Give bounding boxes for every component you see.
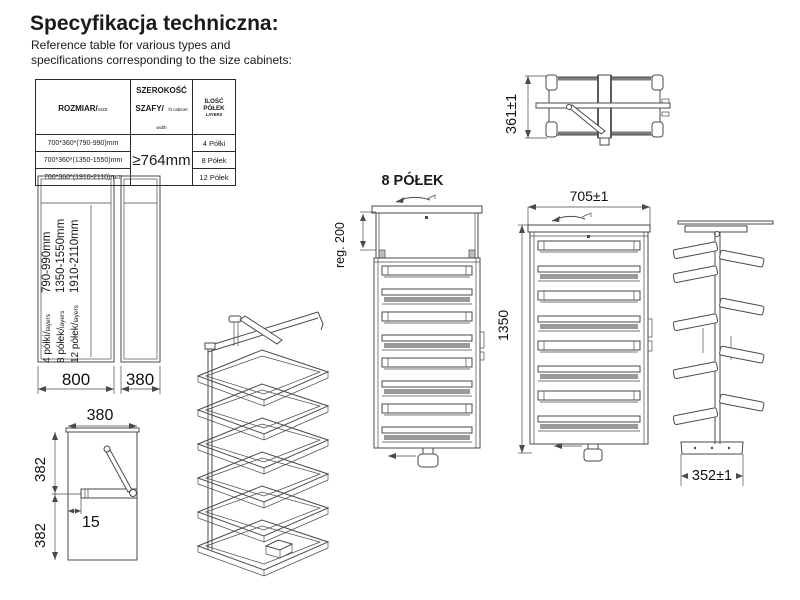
- shelf-row: [382, 266, 472, 277]
- profile-tray: [673, 266, 718, 283]
- height-range-legend: 4 półki/layers 790-990mm 8 półek/layers …: [41, 189, 85, 363]
- unit-foot: [554, 443, 602, 461]
- dim-380-plan: 380: [87, 407, 114, 424]
- dim-15: 15: [82, 514, 100, 531]
- dim-382-upper: 382: [33, 457, 49, 482]
- dim-382-lower: 382: [33, 523, 49, 548]
- spec-sheet: Specyfikacja techniczna: Reference table…: [0, 0, 800, 600]
- shelf-row: [538, 266, 640, 281]
- isometric-drawing: [178, 288, 336, 578]
- profile-base: [681, 442, 743, 454]
- dimensioned-unit-drawing: 705±1 1350: [492, 183, 670, 468]
- profile-tray: [719, 394, 764, 411]
- front-unit-body: [374, 258, 484, 448]
- table-header-row: ROZMIAR/SIZE SZEROKOŚĆ SZAFY/ fit cabine…: [36, 80, 236, 135]
- unit-title-8-polek: 8 PÓŁEK: [330, 173, 495, 189]
- profile-tray: [673, 314, 718, 331]
- shelf-row: [538, 341, 640, 352]
- top-view-drawing: 361±1: [492, 60, 677, 148]
- shelf-row: [382, 427, 472, 442]
- iso-shelf: [198, 418, 328, 474]
- top-view-frame: [536, 75, 670, 145]
- shelves-cell: 4 Półki: [193, 135, 236, 152]
- iso-top-arm: [208, 312, 323, 352]
- profile-drawing: 352±1: [653, 188, 793, 488]
- shelf-row: [538, 291, 640, 302]
- header-ilosc-polek: ILOŚĆ PÓŁEKLAYERS: [193, 80, 236, 135]
- cabinet-380: [121, 176, 160, 362]
- shelves-cell: 12 Półek: [193, 169, 236, 186]
- front-unit-top-section: [376, 213, 478, 258]
- iso-shelf: [198, 452, 328, 508]
- iso-foot: [266, 540, 292, 558]
- shelves-cell: 8 Półek: [193, 152, 236, 169]
- shelf-row: [538, 241, 640, 252]
- header-rozmiar: ROZMIAR/SIZE: [36, 80, 131, 135]
- legend-line: 8 półek/layers 1350-1550mm: [55, 189, 69, 363]
- page-title: Specyfikacja techniczna:: [30, 12, 279, 36]
- page-subtitle-line2: specifications corresponding to the size…: [31, 53, 292, 68]
- shelf-row: [538, 316, 640, 331]
- legend-line: 4 półki/layers 790-990mm: [41, 189, 55, 363]
- shelf-row: [382, 358, 472, 369]
- shelf-row: [382, 404, 472, 415]
- shelf-row: [538, 366, 640, 381]
- iso-shelf: [198, 486, 328, 542]
- profile-top-bar: [678, 221, 773, 237]
- size-cell: 700*360*(1350-1550)mm: [36, 152, 131, 169]
- legend-line: 12 półek/layers 1910-2110mm: [69, 189, 83, 363]
- unit-body: [530, 232, 652, 444]
- dim-reg-200: reg. 200: [333, 222, 347, 268]
- plan-view-drawing: 380 382 382 15: [33, 398, 178, 576]
- shelf-row: [538, 416, 640, 431]
- profile-tray: [719, 346, 764, 363]
- swing-arm: [81, 446, 137, 498]
- front-unit-drawing: reg. 200: [330, 192, 495, 477]
- dim-1350: 1350: [495, 310, 511, 341]
- shelf-row: [382, 381, 472, 396]
- front-unit-foot: [388, 448, 438, 467]
- dim-352: 352±1: [692, 468, 732, 484]
- shelf-row: [538, 391, 640, 402]
- profile-tray: [673, 242, 718, 259]
- table-row: 700*360*(790-990)mm ≥764mm 4 Półki: [36, 135, 236, 152]
- size-cell: 700*360*(790-990)mm: [36, 135, 131, 152]
- front-unit-lid: [372, 195, 482, 219]
- profile-tray: [719, 298, 764, 315]
- iso-shelf: [198, 520, 328, 576]
- profile-tray: [673, 362, 718, 379]
- shelf-row: [382, 335, 472, 350]
- dim-800: 800: [62, 370, 90, 389]
- dim-361: 361±1: [504, 94, 520, 134]
- page-subtitle-line1: Reference table for various types and: [31, 38, 230, 53]
- header-szerokosc: SZEROKOŚĆ SZAFY/ fit cabinet width: [131, 80, 193, 135]
- iso-shelf: [198, 350, 328, 406]
- shelf-row: [382, 289, 472, 304]
- dim-380-front: 380: [126, 370, 154, 389]
- shelf-row: [382, 312, 472, 323]
- profile-tray: [719, 250, 764, 267]
- dim-705: 705±1: [570, 188, 609, 204]
- iso-shelf: [198, 384, 328, 440]
- unit-lid: [528, 213, 650, 238]
- profile-tray: [673, 408, 718, 425]
